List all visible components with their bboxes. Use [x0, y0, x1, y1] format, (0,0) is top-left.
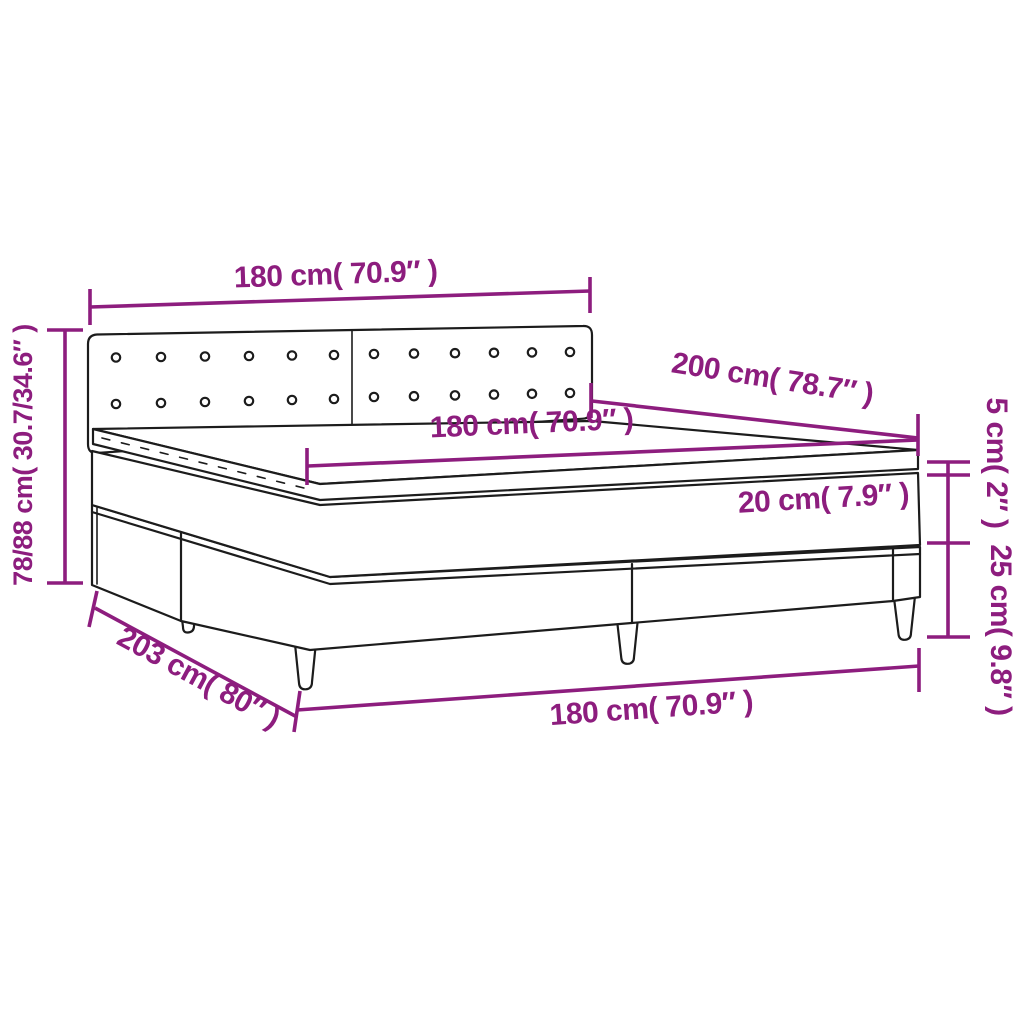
- diagram-canvas: 180 cm( 70.9″ ) 200 cm( 78.7″ ) 180 cm( …: [0, 0, 1024, 1024]
- headboard-button: [330, 395, 338, 403]
- bed-leg: [894, 596, 915, 640]
- dim-overall-height: 78/88 cm( 30.7/34.6″ ): [8, 324, 83, 586]
- headboard-button: [112, 400, 120, 408]
- headboard-button: [451, 349, 459, 357]
- headboard-button: [112, 353, 120, 361]
- dim-label-bed-length: 200 cm( 78.7″ ): [669, 346, 875, 410]
- headboard-button: [370, 393, 378, 401]
- headboard-button: [451, 391, 459, 399]
- headboard-button: [245, 397, 253, 405]
- headboard-button: [157, 399, 165, 407]
- dim-line: [90, 291, 590, 307]
- headboard-button: [490, 390, 498, 398]
- dim-label-topper-thickness: 5 cm( 2″ ): [980, 397, 1013, 528]
- headboard-button: [410, 392, 418, 400]
- headboard-button: [566, 348, 574, 356]
- dim-label-base-height: 25 cm( 9.8″ ): [984, 544, 1017, 715]
- dim-label-headboard-width: 180 cm( 70.9″ ): [233, 254, 438, 294]
- headboard-button: [288, 351, 296, 359]
- headboard-button: [330, 351, 338, 359]
- headboard-button: [288, 396, 296, 404]
- dim-label-base-width: 180 cm( 70.9″ ): [549, 685, 754, 732]
- dim-headboard-width: 180 cm( 70.9″ ): [90, 254, 590, 325]
- headboard-button: [370, 350, 378, 358]
- headboard-button: [528, 348, 536, 356]
- headboard-button: [245, 352, 253, 360]
- headboard-button: [201, 398, 209, 406]
- headboard-button: [566, 389, 574, 397]
- headboard-button: [410, 349, 418, 357]
- dim-label-overall-height: 78/88 cm( 30.7/34.6″ ): [8, 324, 38, 586]
- headboard-button: [201, 352, 209, 360]
- headboard-button: [490, 349, 498, 357]
- dim-base-width: 180 cm( 70.9″ ): [294, 648, 919, 732]
- dim-right-heights: 5 cm( 2″ ) 25 cm( 9.8″ ): [927, 397, 1017, 715]
- bed-dimension-diagram: 180 cm( 70.9″ ) 200 cm( 78.7″ ) 180 cm( …: [0, 0, 1024, 1024]
- headboard-button: [528, 390, 536, 398]
- headboard-button: [157, 353, 165, 361]
